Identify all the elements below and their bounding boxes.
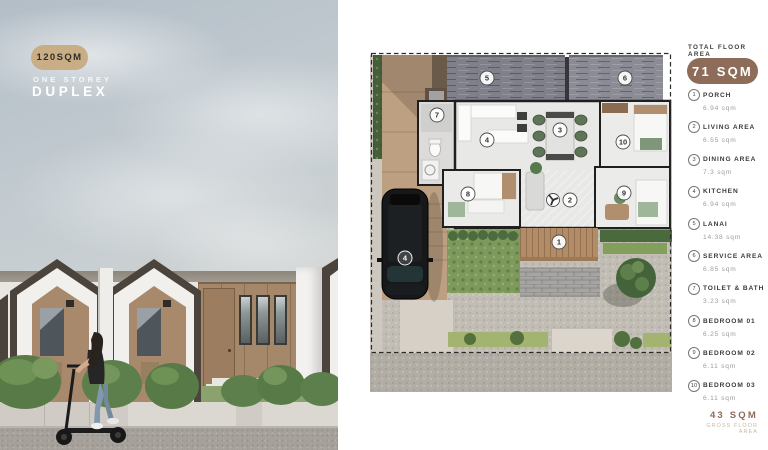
svg-text:8: 8: [466, 190, 470, 199]
marker-bedroom2: 9: [617, 186, 631, 200]
marker-porch: 1: [552, 235, 566, 249]
item-label: BEDROOM 03: [703, 382, 756, 389]
item-label: BEDROOM 02: [703, 350, 756, 357]
item-number: 10: [688, 380, 700, 392]
roof-service: [569, 55, 663, 101]
gross-label: GROSS FLOOR AREA: [686, 423, 758, 435]
room-bedroom-01: [443, 170, 520, 227]
item-area: 6.85 sqm: [703, 266, 766, 273]
legend-item: 2LIVING AREA 6.55 sqm: [688, 121, 766, 153]
gross-value: 43 SQM: [686, 410, 758, 421]
item-area: 6.11 sqm: [703, 395, 766, 402]
item-area: 7.3 sqm: [703, 169, 766, 176]
room-bedroom-02: [595, 167, 670, 228]
svg-text:1: 1: [557, 238, 561, 247]
fan-icon: [547, 194, 560, 207]
legend-item: 8BEDROOM 01 6.25 sqm: [688, 315, 766, 347]
item-area: 6.94 sqm: [703, 201, 766, 208]
marker-bedroom1: 8: [461, 187, 475, 201]
marker-carport: 4: [398, 251, 412, 265]
item-label: LIVING AREA: [703, 124, 755, 131]
car: [377, 189, 443, 302]
item-number: 4: [688, 186, 700, 198]
floor-plan-panel: 5 6 7 4 3 10 8 2 9 1 4: [338, 0, 686, 450]
item-label: KITCHEN: [703, 188, 739, 195]
svg-text:5: 5: [485, 74, 489, 83]
item-area: 6.94 sqm: [703, 105, 766, 112]
item-number: 9: [688, 347, 700, 359]
svg-text:3: 3: [558, 126, 562, 135]
item-number: 7: [688, 283, 700, 295]
legend-item: 6SERVICE AREA 6.85 sqm: [688, 250, 766, 282]
marker-bedroom3: 10: [616, 135, 630, 149]
marker-toilet: 7: [430, 108, 444, 122]
svg-text:10: 10: [619, 138, 627, 147]
badge-subtitle: ONE STOREY: [33, 75, 112, 84]
item-number: 6: [688, 250, 700, 262]
item-label: BEDROOM 01: [703, 318, 756, 325]
item-number: 1: [688, 89, 700, 101]
svg-text:9: 9: [622, 189, 626, 198]
legend-sidebar: TOTAL FLOOR AREA 71 SQM 1PORCH 6.94 sqm …: [686, 0, 768, 450]
gross-floor-area: 43 SQM GROSS FLOOR AREA: [686, 410, 758, 435]
marker-service: 6: [618, 71, 632, 85]
item-number: 5: [688, 218, 700, 230]
legend-item: 4KITCHEN 6.94 sqm: [688, 186, 766, 218]
item-area: 6.25 sqm: [703, 331, 766, 338]
legend-item: 7TOILET & BATH 3.23 sqm: [688, 283, 766, 315]
roof-lanai: [447, 55, 565, 101]
floor-plan: 5 6 7 4 3 10 8 2 9 1 4: [370, 52, 672, 392]
marker-living: 2: [563, 193, 577, 207]
legend-items: 1PORCH 6.94 sqm 2LIVING AREA 6.55 sqm 3D…: [688, 89, 766, 412]
room-bedroom-03: [600, 101, 670, 167]
area-badge: 120SQM: [31, 45, 88, 70]
marker-kitchen: 4: [480, 133, 494, 147]
item-label: PORCH: [703, 92, 731, 99]
item-area: 6.11 sqm: [703, 363, 766, 370]
svg-text:2: 2: [568, 196, 572, 205]
brochure-page: 120SQM ONE STOREY DUPLEX: [0, 0, 768, 450]
legend-item: 9BEDROOM 02 6.11 sqm: [688, 347, 766, 379]
legend-item: 5LANAI 14.38 sqm: [688, 218, 766, 250]
item-area: 3.23 sqm: [703, 298, 766, 305]
badge-title: DUPLEX: [32, 84, 108, 99]
item-label: SERVICE AREA: [703, 253, 763, 260]
item-label: LANAI: [703, 221, 728, 228]
marker-dining: 3: [553, 123, 567, 137]
total-area-badge: 71 SQM: [687, 58, 758, 84]
item-number: 8: [688, 315, 700, 327]
legend-item: 1PORCH 6.94 sqm: [688, 89, 766, 121]
item-label: TOILET & BATH: [703, 285, 764, 292]
marker-lanai: 5: [480, 71, 494, 85]
legend-item: 3DINING AREA 7.3 sqm: [688, 154, 766, 186]
item-label: DINING AREA: [703, 156, 756, 163]
svg-text:6: 6: [623, 74, 627, 83]
exterior-render: 120SQM ONE STOREY DUPLEX: [0, 0, 338, 450]
legend-item: 10BEDROOM 03 6.11 sqm: [688, 380, 766, 412]
svg-text:7: 7: [435, 111, 439, 120]
item-area: 6.55 sqm: [703, 137, 766, 144]
tree: [616, 258, 656, 298]
legend-header: TOTAL FLOOR AREA: [688, 44, 768, 58]
item-area: 14.38 sqm: [703, 234, 766, 241]
item-number: 3: [688, 154, 700, 166]
item-number: 2: [688, 121, 700, 133]
